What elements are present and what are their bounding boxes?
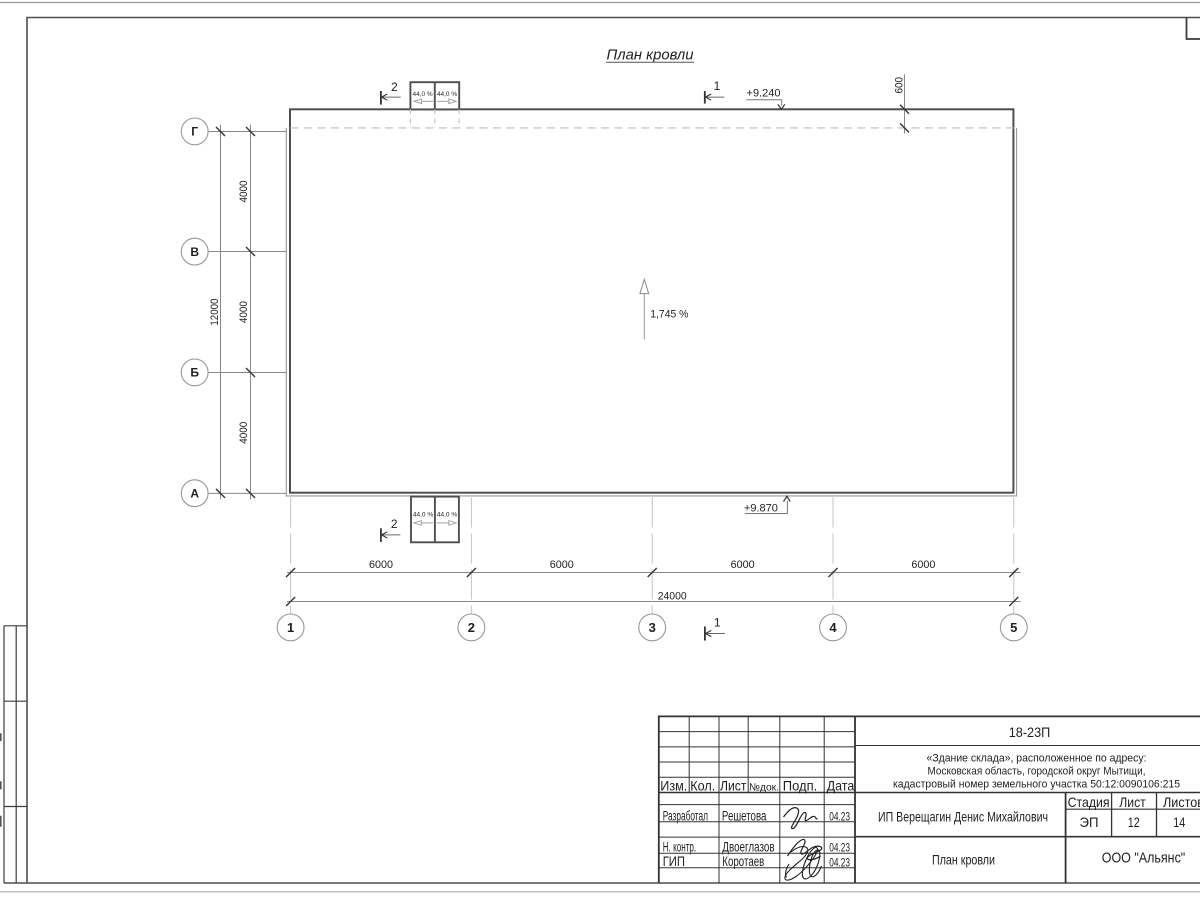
- svg-text:+9.870: +9.870: [744, 503, 778, 515]
- svg-text:ГИП: ГИП: [663, 854, 685, 869]
- svg-text:6000: 6000: [911, 559, 935, 571]
- svg-text:04.23: 04.23: [829, 809, 850, 823]
- svg-text:Кол.: Кол.: [690, 778, 715, 794]
- svg-text:Н. контр.: Н. контр.: [663, 839, 697, 854]
- svg-text:6000: 6000: [550, 559, 574, 571]
- svg-text:44,0 %: 44,0 %: [413, 512, 433, 519]
- svg-text:ООО "Альянс": ООО "Альянс": [1102, 850, 1186, 867]
- svg-text:ИП Верещагин Денис Михайлович: ИП Верещагин Денис Михайлович: [878, 809, 1048, 825]
- svg-text:44,0 %: 44,0 %: [437, 512, 457, 519]
- svg-text:24000: 24000: [658, 591, 687, 603]
- svg-text:4000: 4000: [238, 181, 250, 203]
- svg-text:Коротаев: Коротаев: [722, 854, 764, 869]
- svg-text:2: 2: [391, 517, 398, 531]
- svg-text:1: 1: [287, 620, 294, 635]
- svg-text:План кровли: План кровли: [932, 851, 995, 867]
- svg-text:1: 1: [714, 615, 721, 629]
- svg-text:5: 5: [1010, 620, 1017, 635]
- svg-text:Московская область, городской: Московская область, городской округ Мыти…: [928, 765, 1146, 777]
- svg-text:Б: Б: [190, 366, 199, 380]
- svg-text:Двоеглазов: Двоеглазов: [722, 839, 774, 854]
- svg-text:ЭП: ЭП: [1080, 814, 1099, 830]
- svg-text:Стадия: Стадия: [1068, 794, 1110, 810]
- svg-text:Решетова: Решетова: [722, 808, 767, 823]
- svg-text:Разработал: Разработал: [663, 808, 708, 823]
- svg-text:4000: 4000: [238, 422, 250, 444]
- svg-text:1: 1: [714, 79, 721, 93]
- svg-text:4000: 4000: [238, 301, 250, 323]
- svg-text:04.23: 04.23: [829, 841, 850, 855]
- svg-text:2: 2: [468, 620, 475, 635]
- svg-text:18-23П: 18-23П: [1009, 724, 1051, 740]
- svg-text:600: 600: [894, 77, 906, 94]
- svg-text:Лист: Лист: [720, 778, 747, 794]
- svg-text:№док.: №док.: [749, 782, 779, 794]
- svg-text:«Здание склада», расположенное: «Здание склада», расположенное по адресу…: [927, 753, 1147, 765]
- svg-text:Листов: Листов: [1163, 794, 1200, 810]
- svg-text:кадастровый номер земельного у: кадастровый номер земельного участка 50:…: [893, 778, 1180, 790]
- svg-text:Лист: Лист: [1119, 794, 1146, 810]
- svg-text:44,0 %: 44,0 %: [412, 91, 432, 98]
- svg-text:6000: 6000: [369, 559, 393, 571]
- svg-text:12000: 12000: [209, 299, 221, 326]
- svg-text:6000: 6000: [731, 559, 755, 571]
- svg-text:В: В: [190, 245, 199, 259]
- svg-text:Изм.: Изм.: [660, 778, 687, 794]
- svg-text:44,0 %: 44,0 %: [437, 91, 457, 98]
- svg-text:Подп.: Подп.: [783, 778, 818, 794]
- svg-text:12: 12: [1128, 814, 1140, 830]
- svg-text:Дата: Дата: [827, 778, 855, 794]
- svg-text:А: А: [190, 487, 199, 501]
- svg-text:План кровли: План кровли: [607, 47, 695, 64]
- svg-text:4: 4: [829, 620, 837, 635]
- svg-text:14: 14: [1173, 814, 1185, 830]
- svg-text:Г: Г: [191, 125, 198, 139]
- svg-text:3: 3: [649, 620, 656, 635]
- svg-text:2: 2: [391, 80, 398, 94]
- svg-text:+9.240: +9.240: [747, 88, 781, 100]
- svg-text:1,745 %: 1,745 %: [650, 308, 688, 320]
- svg-text:04.23: 04.23: [829, 856, 850, 870]
